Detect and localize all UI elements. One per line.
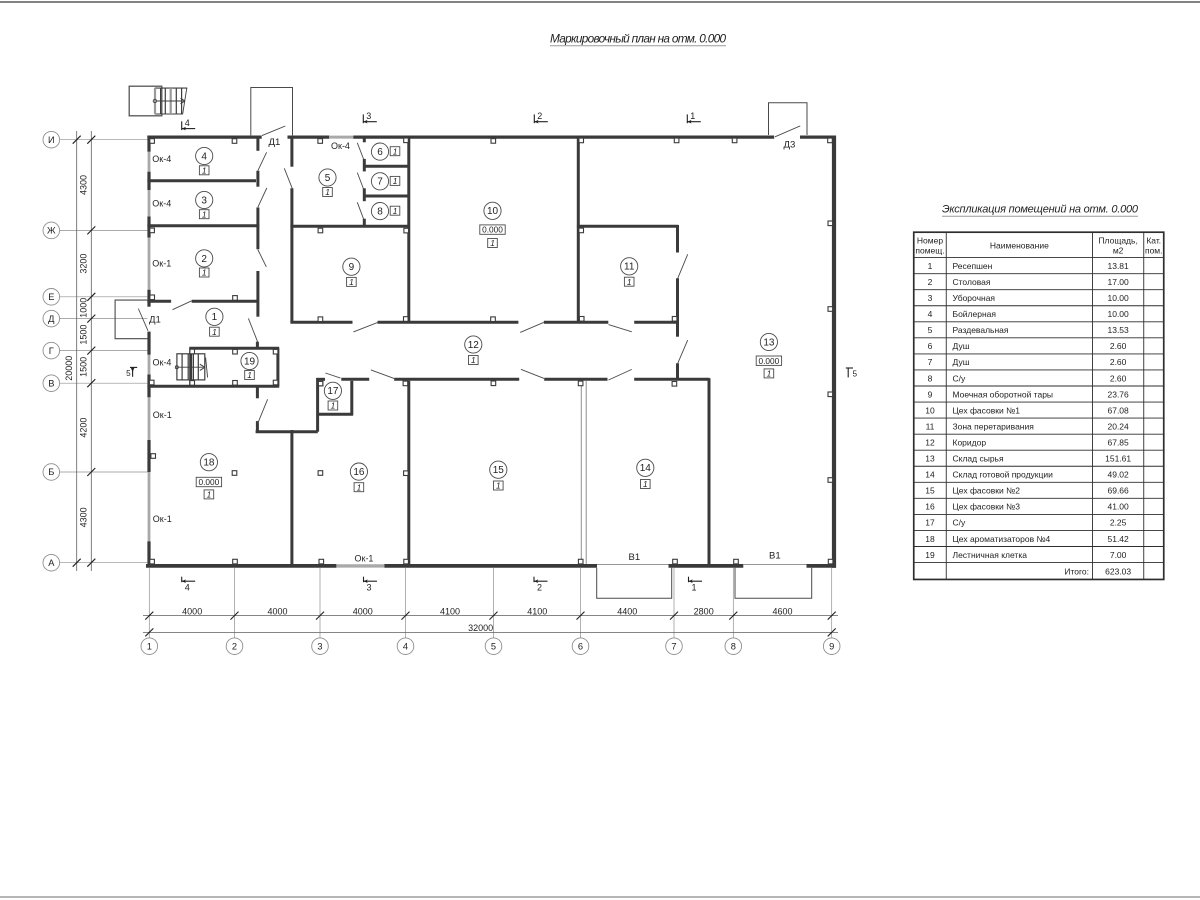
svg-text:2: 2 [537,111,542,121]
svg-text:С/у: С/у [953,373,967,383]
svg-text:Наименование: Наименование [990,241,1049,251]
svg-text:32000: 32000 [468,623,493,633]
svg-text:Ок-1: Ок-1 [355,554,374,564]
svg-text:15: 15 [925,486,935,496]
svg-text:4100: 4100 [440,606,460,616]
svg-text:А: А [48,558,55,568]
svg-text:1500: 1500 [79,357,89,377]
svg-text:3: 3 [201,195,207,206]
svg-text:10.00: 10.00 [1107,293,1129,303]
svg-text:4: 4 [201,151,207,162]
svg-text:19: 19 [244,356,256,367]
svg-text:Ок-1: Ок-1 [153,410,172,420]
svg-text:13: 13 [763,337,775,348]
svg-text:6: 6 [578,641,583,651]
svg-text:10: 10 [925,405,935,415]
svg-text:2: 2 [928,277,933,287]
svg-text:Цех фасовки №1: Цех фасовки №1 [953,405,1021,415]
svg-text:13: 13 [925,454,935,464]
svg-text:1: 1 [928,261,933,271]
svg-text:Моечная оборотной тары: Моечная оборотной тары [953,389,1054,399]
svg-text:1: 1 [691,583,696,593]
svg-text:69.66: 69.66 [1107,486,1129,496]
svg-text:С/у: С/у [953,518,967,528]
svg-text:8: 8 [377,207,383,218]
svg-text:1: 1 [643,479,648,489]
svg-text:Маркировочный план на отм. 0.0: Маркировочный план на отм. 0.000 [550,32,726,46]
svg-text:4: 4 [185,583,190,593]
svg-text:Ок-4: Ок-4 [152,154,171,164]
svg-text:1: 1 [202,209,207,219]
svg-text:Цех фасовки №3: Цех фасовки №3 [953,502,1021,512]
svg-text:2: 2 [232,641,237,651]
svg-text:1: 1 [357,482,362,492]
svg-text:4100: 4100 [527,606,547,616]
svg-text:Ок-4: Ок-4 [331,141,350,151]
svg-text:5: 5 [491,641,496,651]
svg-text:Д3: Д3 [784,139,796,150]
svg-text:0.000: 0.000 [482,225,503,235]
svg-text:5: 5 [853,370,858,379]
svg-text:9: 9 [928,389,933,399]
svg-text:4000: 4000 [267,606,287,616]
svg-text:14: 14 [925,470,935,480]
svg-text:Бойлерная: Бойлерная [953,309,997,319]
svg-text:Д1: Д1 [149,314,161,325]
svg-text:В: В [48,378,54,388]
svg-text:Столовая: Столовая [953,277,991,287]
svg-text:1: 1 [690,111,695,121]
svg-text:51.42: 51.42 [1107,534,1129,544]
svg-text:2.60: 2.60 [1110,357,1127,367]
svg-text:12: 12 [925,437,935,447]
svg-text:3: 3 [928,293,933,303]
svg-text:10: 10 [487,206,499,217]
svg-text:1: 1 [471,355,476,365]
svg-text:1: 1 [207,490,212,500]
svg-text:7.00: 7.00 [1110,550,1127,560]
svg-text:17: 17 [925,518,935,528]
svg-text:3: 3 [366,111,371,121]
svg-text:1: 1 [393,206,398,216]
svg-text:18: 18 [925,534,935,544]
svg-text:Коридор: Коридор [953,437,987,447]
svg-text:1: 1 [349,277,354,287]
svg-text:1: 1 [325,187,330,197]
svg-text:7: 7 [671,641,676,651]
svg-text:151.61: 151.61 [1105,454,1131,464]
svg-text:17: 17 [327,386,339,397]
svg-text:19: 19 [925,550,935,560]
svg-text:1000: 1000 [79,298,89,318]
svg-text:5: 5 [928,325,933,335]
svg-text:4600: 4600 [772,606,792,616]
svg-text:Душ: Душ [953,341,970,351]
svg-text:9: 9 [349,262,355,273]
svg-text:Г: Г [49,346,54,356]
svg-text:1: 1 [212,327,217,337]
svg-text:10.00: 10.00 [1107,309,1129,319]
svg-text:4300: 4300 [79,175,89,195]
svg-text:1: 1 [393,146,398,156]
svg-text:4: 4 [928,309,933,319]
svg-text:Д: Д [48,314,55,324]
svg-text:Е: Е [48,292,54,302]
svg-text:2.25: 2.25 [1110,518,1127,528]
svg-text:8: 8 [731,641,736,651]
svg-text:3: 3 [366,583,371,593]
svg-text:Лестничная клетка: Лестничная клетка [953,550,1028,560]
svg-text:1: 1 [331,401,336,411]
svg-text:В1: В1 [629,552,641,563]
svg-text:1: 1 [147,641,152,651]
svg-text:4: 4 [403,641,408,651]
svg-text:1500: 1500 [79,325,89,345]
svg-text:Ж: Ж [47,226,56,236]
svg-text:Площадь,: Площадь, [1098,235,1137,245]
svg-text:41.00: 41.00 [1107,502,1129,512]
svg-text:Уборочная: Уборочная [953,293,996,303]
svg-text:Ок-4: Ок-4 [153,358,172,368]
svg-text:Ресепшен: Ресепшен [953,261,993,271]
svg-text:1: 1 [202,268,207,278]
svg-text:5: 5 [325,173,331,184]
svg-text:15: 15 [493,465,505,476]
svg-text:1: 1 [212,312,218,323]
svg-text:Б: Б [48,467,54,477]
svg-text:2.60: 2.60 [1110,373,1127,383]
svg-text:13.53: 13.53 [1107,325,1129,335]
svg-text:И: И [48,135,55,145]
svg-text:7: 7 [928,357,933,367]
svg-text:7: 7 [377,177,383,188]
svg-text:Итого:: Итого: [1064,567,1089,577]
svg-text:Ок-1: Ок-1 [152,258,171,268]
svg-text:Цех фасовки №2: Цех фасовки №2 [953,486,1021,496]
svg-text:Экспликация помещений на отм.: Экспликация помещений на отм. 0.000 [942,204,1139,216]
svg-text:1: 1 [627,277,632,287]
svg-text:Склад готовой продукции: Склад готовой продукции [953,470,1054,480]
svg-text:4200: 4200 [79,418,89,438]
svg-text:16: 16 [925,502,935,512]
svg-text:67.08: 67.08 [1107,405,1129,415]
svg-text:0.000: 0.000 [759,356,780,366]
svg-text:67.85: 67.85 [1107,437,1129,447]
svg-text:20.24: 20.24 [1107,421,1129,431]
svg-text:3200: 3200 [79,254,89,274]
svg-text:4400: 4400 [617,606,637,616]
svg-text:18: 18 [203,458,215,469]
svg-text:Кат.: Кат. [1146,235,1161,245]
svg-text:5: 5 [126,369,131,378]
svg-text:2: 2 [201,254,207,265]
svg-text:2.60: 2.60 [1110,341,1127,351]
svg-text:13.81: 13.81 [1107,261,1129,271]
svg-text:4000: 4000 [182,606,202,616]
svg-text:16: 16 [353,467,365,478]
svg-text:Склад сырья: Склад сырья [953,454,1004,464]
svg-text:6: 6 [928,341,933,351]
svg-text:4000: 4000 [353,606,373,616]
svg-text:Номер: Номер [917,235,943,245]
svg-text:4300: 4300 [79,507,89,527]
svg-text:2800: 2800 [694,606,714,616]
svg-text:1: 1 [490,238,495,248]
svg-text:6: 6 [377,147,383,158]
svg-text:1: 1 [393,176,398,186]
svg-text:14: 14 [640,463,652,474]
svg-text:1: 1 [767,369,772,379]
svg-text:8: 8 [928,373,933,383]
svg-text:Душ: Душ [953,357,970,367]
svg-text:49.02: 49.02 [1107,470,1129,480]
svg-text:4: 4 [185,118,190,128]
svg-text:Ок-1: Ок-1 [153,514,172,524]
svg-text:11: 11 [926,421,935,431]
svg-text:20000: 20000 [64,356,74,381]
svg-text:23.76: 23.76 [1107,389,1129,399]
svg-text:3: 3 [317,641,322,651]
svg-text:2: 2 [537,583,542,593]
svg-text:м2: м2 [1113,246,1124,256]
svg-text:пом.: пом. [1145,246,1163,256]
svg-text:В1: В1 [769,551,781,562]
svg-text:Цех ароматизаторов №4: Цех ароматизаторов №4 [953,534,1051,544]
svg-text:Зона перетаривания: Зона перетаривания [953,421,1035,431]
svg-text:Раздевальная: Раздевальная [953,325,1009,335]
svg-text:11: 11 [624,262,635,273]
svg-text:Д1: Д1 [269,137,281,148]
svg-text:Ок-4: Ок-4 [152,198,171,208]
svg-text:помещ.: помещ. [915,246,944,256]
svg-text:1: 1 [247,370,252,380]
svg-text:623.03: 623.03 [1105,567,1131,577]
svg-text:17.00: 17.00 [1107,277,1129,287]
svg-text:1: 1 [496,481,501,491]
svg-text:9: 9 [829,641,834,651]
svg-text:0.000: 0.000 [199,477,220,487]
svg-text:12: 12 [468,340,480,351]
svg-text:1: 1 [202,166,207,176]
